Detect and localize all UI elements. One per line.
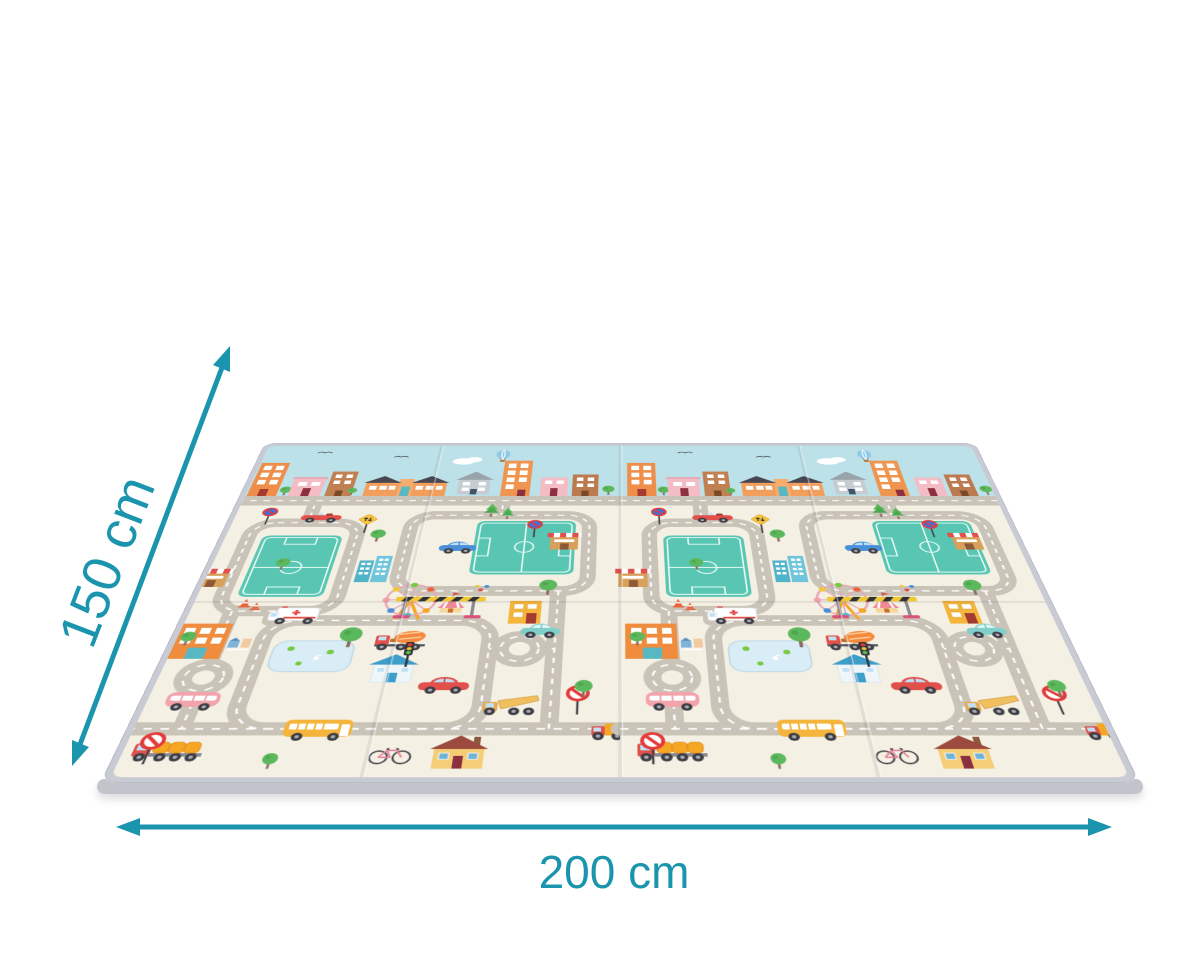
play-mat-artwork: [100, 443, 1140, 783]
height-dimension-label: 150 cm: [47, 468, 166, 655]
width-dimension-arrow: [116, 818, 1112, 836]
width-dimension-label: 200 cm: [539, 846, 690, 898]
product-dimension-image: 150 cm 200 cm: [0, 0, 1200, 960]
play-mat: [100, 443, 1140, 783]
